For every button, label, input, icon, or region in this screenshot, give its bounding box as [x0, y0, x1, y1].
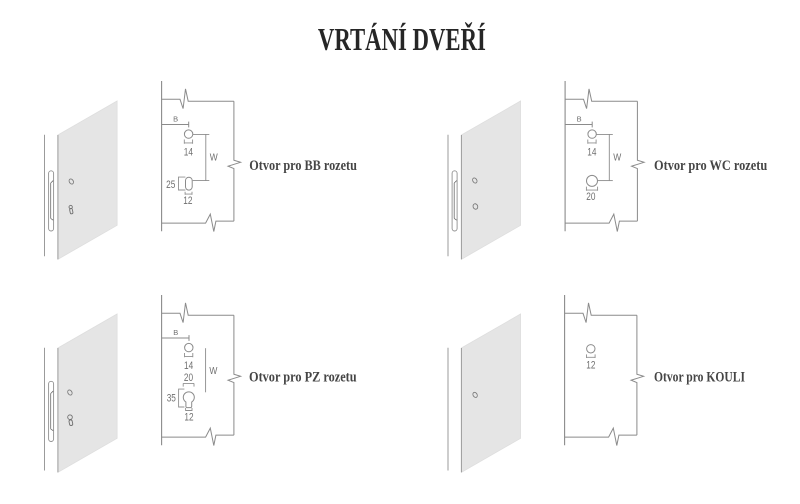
svg-text:VRTÁNÍ DVEŘÍ: VRTÁNÍ DVEŘÍ — [318, 21, 486, 57]
svg-text:14: 14 — [184, 146, 193, 158]
svg-text:B: B — [173, 328, 178, 337]
svg-text:Otvor pro KOULI: Otvor pro KOULI — [654, 370, 745, 386]
svg-text:12: 12 — [184, 411, 193, 423]
svg-text:B: B — [173, 115, 178, 124]
svg-text:20: 20 — [586, 191, 595, 203]
svg-text:35: 35 — [167, 393, 176, 405]
svg-text:W: W — [613, 153, 621, 164]
svg-text:B: B — [577, 115, 582, 124]
svg-text:Otvor pro PZ rozetu: Otvor pro PZ rozetu — [249, 370, 357, 386]
svg-text:Otvor pro WC rozetu: Otvor pro WC rozetu — [654, 158, 767, 174]
svg-text:25: 25 — [166, 179, 175, 191]
svg-text:20: 20 — [184, 372, 193, 384]
svg-text:12: 12 — [183, 195, 192, 207]
svg-text:Otvor pro BB rozetu: Otvor pro BB rozetu — [249, 158, 357, 174]
svg-text:W: W — [209, 366, 217, 377]
svg-text:W: W — [210, 153, 218, 164]
svg-text:12: 12 — [586, 359, 595, 371]
svg-text:14: 14 — [184, 360, 193, 372]
svg-text:14: 14 — [587, 146, 596, 158]
